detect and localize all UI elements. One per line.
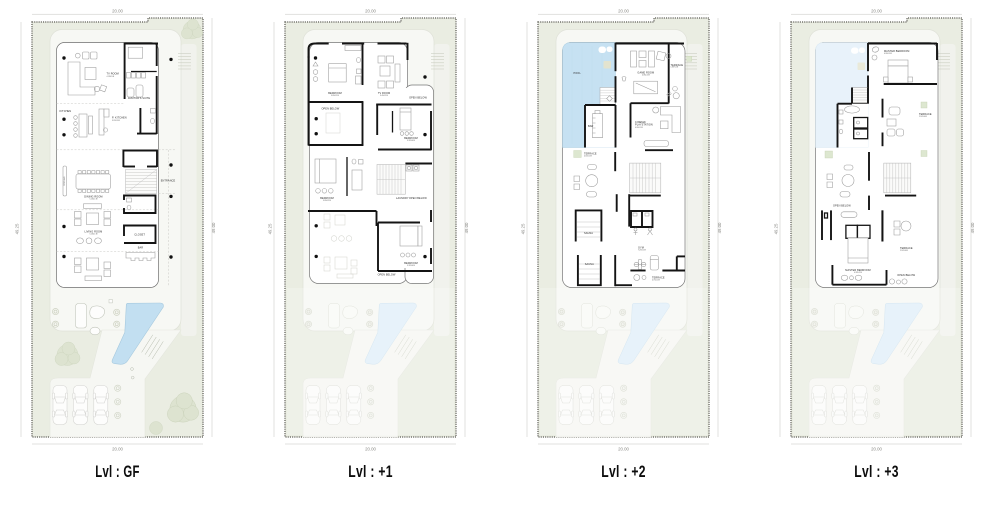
svg-text:5.1X4.5 M: 5.1X4.5 M [90,234,98,236]
svg-text:OPEN BELOW: OPEN BELOW [833,205,851,208]
svg-text:OPEN BELOW: OPEN BELOW [897,274,915,277]
svg-text:Lvl : GF: Lvl : GF [95,463,140,481]
svg-text:LAUNDRY: LAUNDRY [396,197,409,200]
svg-text:2.5X3.6 M: 2.5X3.6 M [900,250,908,252]
svg-text:BAR: BAR [138,247,144,250]
svg-text:BAR: BAR [588,125,594,128]
svg-text:4.3X4.5 M: 4.3X4.5 M [642,75,650,77]
svg-text:OPEN BELOW: OPEN BELOW [322,108,340,111]
svg-text:3.2X4.5 M: 3.2X4.5 M [112,120,120,122]
svg-text:ENTRANCE: ENTRANCE [161,180,176,183]
svg-text:2.5X3.6 M: 2.5X3.6 M [919,116,927,118]
svg-text:3.8X4.2 M: 3.8X4.2 M [323,200,331,202]
svg-text:POOL: POOL [574,72,582,75]
svg-text:SAUNA: SAUNA [585,263,594,266]
svg-text:7.2X3.1 M: 7.2X3.1 M [638,250,646,252]
svg-text:3.3X3.6 M: 3.3X3.6 M [407,140,415,142]
svg-text:4.5X3.1 M: 4.5X3.1 M [584,156,592,158]
svg-text:5.1X4.5 M: 5.1X4.5 M [90,199,98,201]
svg-text:3.8X4.2 M: 3.8X4.2 M [331,95,339,97]
svg-text:4.1X4.5 M: 4.1X4.5 M [107,76,115,78]
svg-text:4.3X4.5 M: 4.3X4.5 M [884,53,892,55]
svg-text:3.4X4.2 M: 3.4X4.2 M [380,95,388,97]
svg-text:4.3X4.1 M: 4.3X4.1 M [635,127,643,129]
svg-text:FIREPLACE: FIREPLACE [63,175,66,185]
svg-text:Lvl : +3: Lvl : +3 [854,463,899,481]
svg-text:4.7X4.1 M: 4.7X4.1 M [652,280,660,282]
svg-text:1.8X7.4 M: 1.8X7.4 M [671,67,679,69]
svg-text:Lvl : +1: Lvl : +1 [348,463,393,481]
svg-text:KITCHEN: KITCHEN [60,110,72,113]
svg-text:OPEN BELOW: OPEN BELOW [409,197,427,200]
svg-text:3.3X3.6 M: 3.3X3.6 M [407,265,415,267]
svg-text:SAUNA: SAUNA [584,232,593,235]
svg-text:OPEN BELOW: OPEN BELOW [378,274,396,277]
svg-text:4.3X5.2 M: 4.3X5.2 M [854,272,862,274]
svg-text:OPEN BELOW: OPEN BELOW [409,97,427,100]
svg-text:Lvl : +2: Lvl : +2 [601,463,646,481]
svg-text:JANITOR'S SUITE: JANITOR'S SUITE [128,97,151,100]
svg-text:CLOSET: CLOSET [134,234,145,237]
